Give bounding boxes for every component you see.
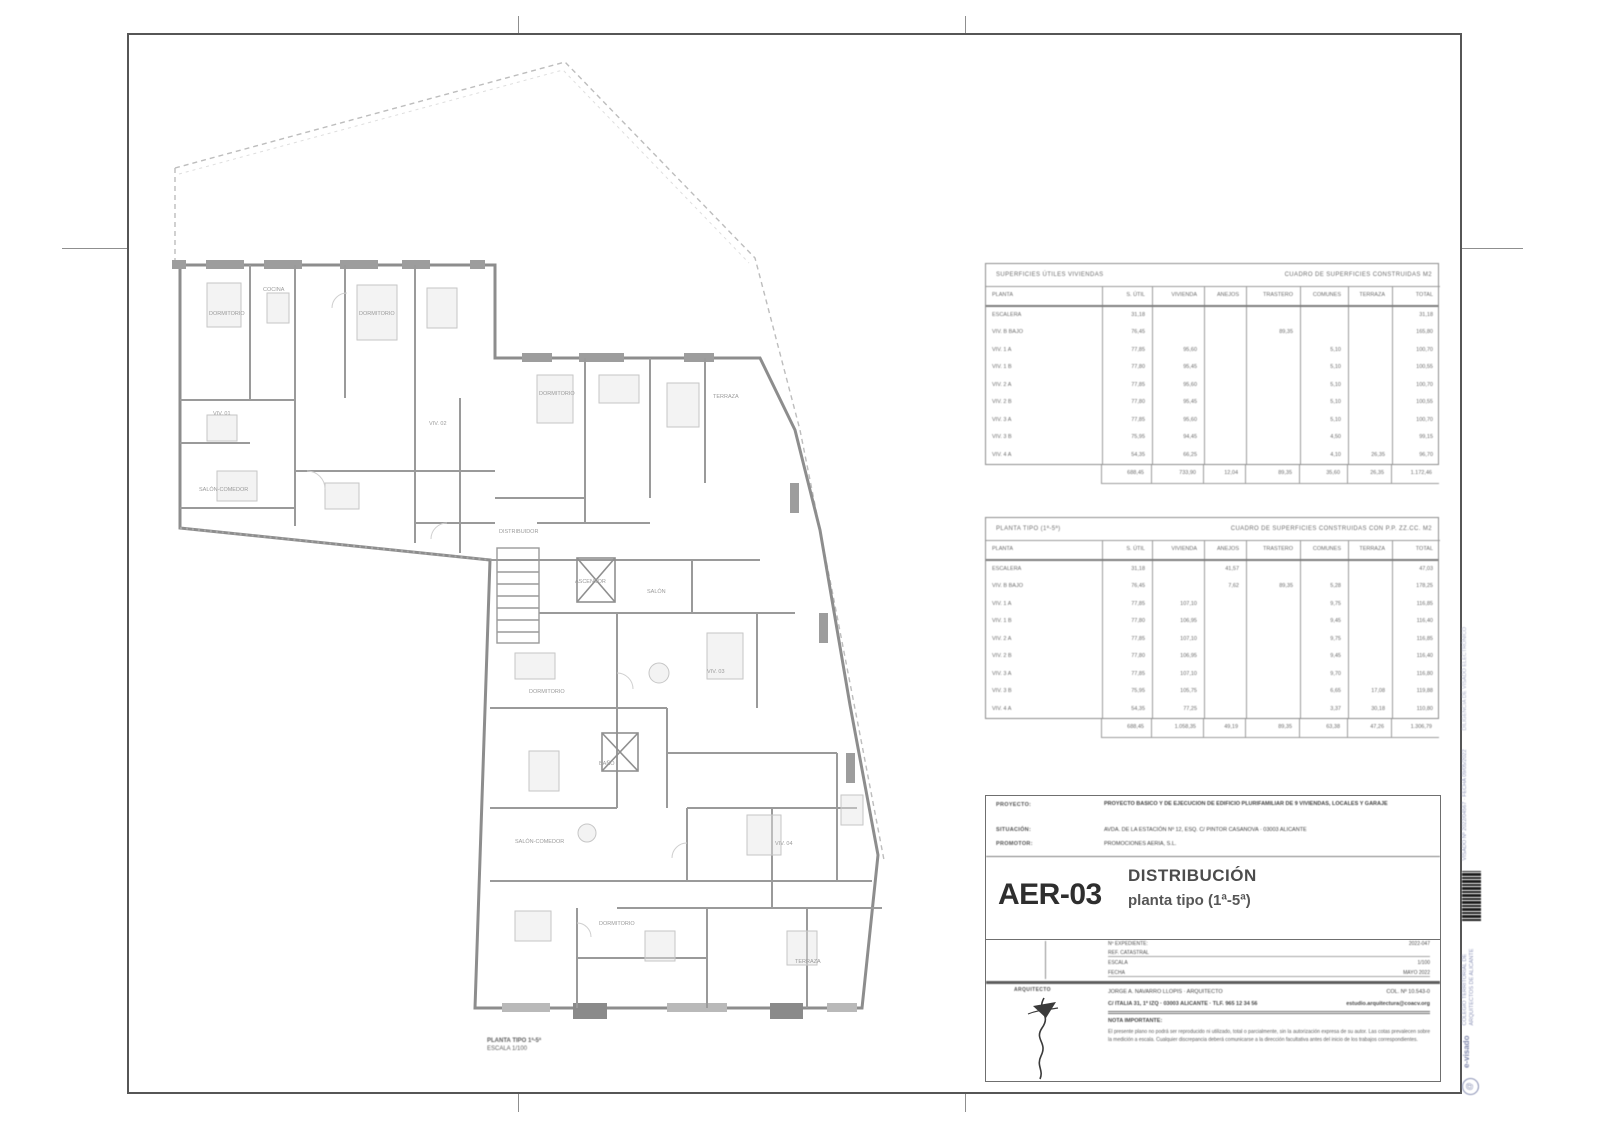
visa-stamp-strip: @ e-visado COLEGIO TERRITORIAL DE ARQUIT…: [1462, 595, 1534, 1095]
table-cell: VIV. 2 B: [986, 648, 1102, 666]
table2-header: PLANTAS. ÚTILVIVIENDAANEJOSTRASTEROCOMUN…: [986, 540, 1438, 561]
table-cell: 49,19: [1203, 719, 1245, 737]
table-cell: 26,35: [1347, 465, 1391, 483]
table-cell: [1204, 342, 1246, 360]
table-cell: VIV. 2 A: [986, 631, 1102, 649]
table2-title-left: PLANTA TIPO (1ª-5ª): [996, 526, 1061, 532]
table-cell: ANEJOS: [1204, 286, 1246, 305]
table-cell: 5,10: [1300, 412, 1348, 430]
table-cell: 77,85: [1102, 666, 1152, 684]
table-cell: VIV. 1 B: [986, 359, 1102, 377]
table-cell: [1246, 613, 1300, 631]
room-label: ASCENSOR: [575, 579, 606, 585]
table-cell: 9,45: [1300, 648, 1348, 666]
table-row: VIV. 3 B75,95105,756,6517,08119,88: [986, 683, 1438, 701]
table-cell: 116,40: [1392, 613, 1440, 631]
note-heading: NOTA IMPORTANTE:: [1108, 1018, 1162, 1024]
table-cell: 47,03: [1392, 561, 1440, 579]
table-cell: TERRAZA: [1348, 286, 1392, 305]
table-cell: VIV. 3 B: [986, 683, 1102, 701]
table-cell: 35,60: [1299, 465, 1347, 483]
table-cell: 1.306,79: [1391, 719, 1439, 737]
table-cell: TOTAL: [1392, 540, 1440, 559]
table-cell: 99,15: [1392, 429, 1440, 447]
table-cell: PLANTA: [986, 540, 1102, 559]
table-cell: VIV. 3 B: [986, 429, 1102, 447]
field2-label: REF. CATASTRAL: [1108, 950, 1149, 956]
table-cell: 9,75: [1300, 596, 1348, 614]
table-cell: [1204, 631, 1246, 649]
table-cell: [1246, 561, 1300, 579]
table-cell: [1246, 683, 1300, 701]
table-cell: [1348, 412, 1392, 430]
table-cell: 100,70: [1392, 377, 1440, 395]
table-cell: 31,18: [1392, 307, 1440, 325]
drawing-page: DORMITORIOCOCINADORMITORIOVIV. 01SALÓN-C…: [0, 0, 1600, 1129]
table-cell: 106,95: [1152, 613, 1204, 631]
table-row: VIV. 4 A54,3566,254,1026,3596,70: [986, 447, 1438, 465]
table1-header: PLANTAS. ÚTILVIVIENDAANEJOSTRASTEROCOMUN…: [986, 286, 1438, 307]
table-cell: [1348, 666, 1392, 684]
table-cell: [1204, 412, 1246, 430]
table-cell: [1204, 701, 1246, 719]
table-cell: 89,35: [1245, 719, 1299, 737]
field3-value: 1/100: [1417, 960, 1430, 966]
table-cell: 110,80: [1392, 701, 1440, 719]
site-boundary-inner: [179, 70, 749, 263]
table-cell: [1348, 578, 1392, 596]
table-cell: 9,45: [1300, 613, 1348, 631]
table-cell: [1348, 596, 1392, 614]
table-cell: 77,25: [1152, 701, 1204, 719]
table-cell: [1348, 429, 1392, 447]
field4-label: FECHA: [1108, 970, 1125, 976]
table-cell: [1246, 631, 1300, 649]
architect-email: estudio.arquitectura@coacv.org: [1346, 1001, 1430, 1007]
table-cell: 4,10: [1300, 447, 1348, 465]
table-cell: 89,35: [1246, 324, 1300, 342]
table-cell: [1246, 412, 1300, 430]
table-cell: VIVIENDA: [1152, 540, 1204, 559]
room-label: TERRAZA: [795, 959, 821, 965]
table-cell: 76,45: [1102, 324, 1152, 342]
table-cell: 5,10: [1300, 394, 1348, 412]
table-cell: 1.058,35: [1151, 719, 1203, 737]
table-cell: [1348, 324, 1392, 342]
table-cell: 54,35: [1102, 701, 1152, 719]
building-outline: [180, 265, 878, 1008]
table-cell: 30,18: [1348, 701, 1392, 719]
table-cell: 31,18: [1102, 561, 1152, 579]
table-cell: 89,35: [1245, 465, 1299, 483]
table-row: PLANTAS. ÚTILVIVIENDAANEJOSTRASTEROCOMUN…: [986, 286, 1438, 305]
room-label: TERRAZA: [713, 394, 739, 400]
table-cell: VIV. 1 A: [986, 596, 1102, 614]
table-cell: 116,85: [1392, 631, 1440, 649]
room-label: DORMITORIO: [209, 311, 245, 317]
table-cell: [1348, 307, 1392, 325]
note-text: El presente plano no podrá ser reproduci…: [1108, 1029, 1430, 1044]
table-cell: 9,70: [1300, 666, 1348, 684]
college-text: COLEGIO TERRITORIAL DE ARQUITECTOS DE AL…: [1462, 931, 1476, 1026]
project-text: PROYECTO BÁSICO Y DE EJECUCIÓN DE EDIFIC…: [1104, 801, 1432, 817]
plan-caption-line2: ESCALA 1/100: [487, 1045, 541, 1053]
divider: [1108, 1011, 1430, 1012]
visa-number-text: VISADO Nº 2022/04567 · FECHA 09/05/2022: [1462, 741, 1469, 861]
room-label: DORMITORIO: [599, 921, 635, 927]
table-row: 688,451.058,3549,1989,3563,3847,261.306,…: [1101, 719, 1439, 737]
crop-mark-left: [62, 248, 127, 249]
table-cell: 119,88: [1392, 683, 1440, 701]
table-cell: [1348, 342, 1392, 360]
table-cell: ESCALERA: [986, 307, 1102, 325]
table-row: VIV. 1 B77,80106,959,45116,40: [986, 613, 1438, 631]
table-cell: 89,35: [1246, 578, 1300, 596]
table-cell: 77,80: [1102, 359, 1152, 377]
table1-totals: 688,45733,9012,0489,3535,6026,351.172,46: [1101, 465, 1439, 484]
architect-name: JORGE A. NAVARRO LLOPIS · ARQUITECTO: [1108, 989, 1223, 995]
table-row: ESCALERA31,1841,5747,03: [986, 561, 1438, 579]
table-cell: 5,10: [1300, 377, 1348, 395]
table-cell: [1300, 561, 1348, 579]
location-label: SITUACIÓN:: [996, 827, 1031, 833]
table-cell: 95,60: [1152, 377, 1204, 395]
table-row: 688,45733,9012,0489,3535,6026,351.172,46: [1101, 465, 1439, 483]
field3-label: ESCALA: [1108, 960, 1128, 966]
table-cell: [1246, 359, 1300, 377]
room-label: DORMITORIO: [539, 391, 575, 397]
table-cell: [1204, 307, 1246, 325]
table-cell: 54,35: [1102, 447, 1152, 465]
table-cell: [1246, 447, 1300, 465]
table-cell: 100,70: [1392, 412, 1440, 430]
table-cell: 95,45: [1152, 394, 1204, 412]
table-cell: COMUNES: [1300, 540, 1348, 559]
college-logo-icon: @: [1462, 1078, 1479, 1095]
visa-barcode: [1462, 871, 1481, 921]
room-label: VIV. 02: [429, 421, 447, 427]
plan-caption-line1: PLANTA TIPO 1ª-5ª: [487, 1037, 541, 1045]
room-label: VIV. 03: [707, 669, 725, 675]
table-row: PLANTAS. ÚTILVIVIENDAANEJOSTRASTEROCOMUN…: [986, 540, 1438, 559]
table-cell: [1348, 613, 1392, 631]
table-cell: 76,45: [1102, 578, 1152, 596]
table-cell: [1204, 683, 1246, 701]
table-cell: [1246, 394, 1300, 412]
field1-value: 2022-047: [1409, 941, 1430, 947]
room-label: SALÓN: [647, 588, 666, 595]
field4-value: MAYO 2022: [1403, 970, 1430, 976]
architect-address: C/ ITALIA 31, 1º IZQ · 03003 ALICANTE · …: [1108, 1001, 1257, 1007]
table-row: VIV. B BAJO76,4589,35165,80: [986, 324, 1438, 342]
sheet-subtitle: planta tipo (1ª-5ª): [1128, 892, 1251, 909]
table-cell: 9,75: [1300, 631, 1348, 649]
table-cell: VIV. 1 B: [986, 613, 1102, 631]
sheet-title: DISTRIBUCIÓN: [1128, 866, 1257, 886]
table-cell: 4,50: [1300, 429, 1348, 447]
architect-role-label: ARQUITECTO: [1014, 987, 1051, 993]
table-cell: 100,70: [1392, 342, 1440, 360]
title-block-code-row: AER-03 DISTRIBUCIÓN planta tipo (1ª-5ª): [986, 856, 1440, 940]
table-cell: 6,65: [1300, 683, 1348, 701]
title-block: PROYECTO: PROYECTO BÁSICO Y DE EJECUCIÓN…: [985, 795, 1441, 1082]
table-cell: 165,80: [1392, 324, 1440, 342]
table-cell: [1152, 561, 1204, 579]
table-cell: 106,95: [1152, 648, 1204, 666]
table-cell: [1300, 324, 1348, 342]
table-cell: 77,85: [1102, 631, 1152, 649]
room-label: SALÓN-COMEDOR: [515, 838, 564, 845]
table-cell: VIV. B BAJO: [986, 578, 1102, 596]
table1-body: ESCALERA31,1831,18VIV. B BAJO76,4589,351…: [986, 307, 1438, 465]
evisado-wordmark: e-visado: [1462, 1036, 1471, 1068]
table2-body: ESCALERA31,1841,5747,03VIV. B BAJO76,457…: [986, 561, 1438, 719]
table-cell: TERRAZA: [1348, 540, 1392, 559]
table-cell: 116,40: [1392, 648, 1440, 666]
table-cell: [1204, 596, 1246, 614]
table-row: VIV. 3 A77,8595,605,10100,70: [986, 412, 1438, 430]
table-cell: [1348, 561, 1392, 579]
table-cell: [1348, 359, 1392, 377]
table-cell: [1246, 596, 1300, 614]
room-label: DORMITORIO: [359, 311, 395, 317]
table-cell: [1348, 631, 1392, 649]
table-cell: [1246, 666, 1300, 684]
table-cell: [1152, 578, 1204, 596]
developer-text: PROMOCIONES AERIA, S.L.: [1104, 841, 1432, 848]
table-cell: 7,62: [1204, 578, 1246, 596]
location-text: AVDA. DE LA ESTACIÓN Nº 12, ESQ. C/ PINT…: [1104, 827, 1432, 834]
table-cell: VIV. 4 A: [986, 701, 1102, 719]
architect-number: COL. Nº 10.543-0: [1386, 989, 1430, 995]
room-label: COCINA: [263, 287, 285, 293]
table-cell: 77,80: [1102, 394, 1152, 412]
table-row: VIV. B BAJO76,457,6289,355,28178,25: [986, 578, 1438, 596]
room-label: DISTRIBUIDOR: [499, 529, 538, 535]
table-cell: 3,37: [1300, 701, 1348, 719]
table-cell: [1204, 324, 1246, 342]
table-cell: 75,95: [1102, 429, 1152, 447]
sign-divider: [1045, 941, 1046, 979]
table-cell: 5,10: [1300, 342, 1348, 360]
table-cell: [1204, 666, 1246, 684]
signature-scribble: [986, 984, 1104, 1081]
table-cell: [1348, 377, 1392, 395]
divider: [1108, 1013, 1430, 1014]
table-cell: 12,04: [1203, 465, 1245, 483]
table-row: VIV. 1 A77,8595,605,10100,70: [986, 342, 1438, 360]
table-cell: [1246, 429, 1300, 447]
table-cell: [1204, 447, 1246, 465]
table-cell: TRASTERO: [1246, 286, 1300, 305]
table-cell: 95,60: [1152, 412, 1204, 430]
table-cell: 1.172,46: [1391, 465, 1439, 483]
table-cell: 688,45: [1101, 465, 1151, 483]
room-label: VIV. 01: [213, 411, 231, 417]
table-cell: [1204, 394, 1246, 412]
table2-title-right: CUADRO DE SUPERFICIES CONSTRUIDAS CON P.…: [1231, 526, 1432, 532]
table-cell: [1204, 613, 1246, 631]
table-cell: [1246, 342, 1300, 360]
table-row: VIV. 4 A54,3577,253,3730,18110,80: [986, 701, 1438, 719]
project-label: PROYECTO:: [996, 802, 1031, 808]
table-cell: 77,80: [1102, 648, 1152, 666]
table-cell: 5,28: [1300, 578, 1348, 596]
table-cell: 77,85: [1102, 377, 1152, 395]
room-label: SALÓN-COMEDOR: [199, 486, 248, 493]
table1-title-left: SUPERFICIES ÚTILES VIVIENDAS: [996, 272, 1104, 278]
table-cell: VIV. 4 A: [986, 447, 1102, 465]
table-cell: 77,85: [1102, 342, 1152, 360]
table-cell: VIV. 2 A: [986, 377, 1102, 395]
table-cell: 116,85: [1392, 596, 1440, 614]
table-row: VIV. 2 B77,8095,455,10100,55: [986, 394, 1438, 412]
table-cell: COMUNES: [1300, 286, 1348, 305]
table-cell: 96,70: [1392, 447, 1440, 465]
floor-plan: DORMITORIOCOCINADORMITORIOVIV. 01SALÓN-C…: [147, 53, 947, 1073]
table-row: VIV. 1 A77,85107,109,75116,85: [986, 596, 1438, 614]
table-row: VIV. 2 A77,8595,605,10100,70: [986, 377, 1438, 395]
table-cell: 5,10: [1300, 359, 1348, 377]
plan-caption: PLANTA TIPO 1ª-5ª ESCALA 1/100: [487, 1037, 541, 1053]
table-cell: 100,55: [1392, 359, 1440, 377]
table-cell: [1152, 307, 1204, 325]
areas-table-construidas: SUPERFICIES ÚTILES VIVIENDAS CUADRO DE S…: [985, 263, 1439, 484]
visa-top-text: DILIGENCIA DE VISADO ELECTRÓNICO: [1462, 621, 1469, 731]
areas-table-zzcc: PLANTA TIPO (1ª-5ª) CUADRO DE SUPERFICIE…: [985, 517, 1439, 738]
table-cell: VIV. 2 B: [986, 394, 1102, 412]
table-cell: ESCALERA: [986, 561, 1102, 579]
table-cell: 178,25: [1392, 578, 1440, 596]
table2-totals: 688,451.058,3549,1989,3563,3847,261.306,…: [1101, 719, 1439, 738]
title-block-project-row: PROYECTO: PROYECTO BÁSICO Y DE EJECUCIÓN…: [986, 796, 1440, 857]
table-cell: 107,10: [1152, 666, 1204, 684]
table-cell: VIV. 3 A: [986, 666, 1102, 684]
table-cell: S. ÚTIL: [1102, 286, 1152, 305]
table-cell: TOTAL: [1392, 286, 1440, 305]
table-cell: S. ÚTIL: [1102, 540, 1152, 559]
table-cell: [1204, 648, 1246, 666]
table-cell: 77,85: [1102, 412, 1152, 430]
table-row: VIV. 3 B75,9594,454,5099,15: [986, 429, 1438, 447]
table-cell: 63,38: [1299, 719, 1347, 737]
table-cell: [1152, 324, 1204, 342]
table-cell: 107,10: [1152, 596, 1204, 614]
developer-label: PROMOTOR:: [996, 841, 1033, 847]
table-cell: [1246, 648, 1300, 666]
title-block-architect-row: ARQUITECTO JORGE A. NAVARRO LLOPIS · ARQ…: [986, 984, 1440, 1081]
sheet-frame: DORMITORIOCOCINADORMITORIOVIV. 01SALÓN-C…: [127, 33, 1462, 1094]
table-cell: 107,10: [1152, 631, 1204, 649]
table-cell: [1204, 377, 1246, 395]
table-cell: [1348, 394, 1392, 412]
table-cell: 733,90: [1151, 465, 1203, 483]
table-cell: 66,25: [1152, 447, 1204, 465]
table-cell: VIVIENDA: [1152, 286, 1204, 305]
table-cell: 94,45: [1152, 429, 1204, 447]
table-cell: [1246, 307, 1300, 325]
table-cell: [1204, 429, 1246, 447]
room-label: VIV. 04: [775, 841, 793, 847]
table-cell: ANEJOS: [1204, 540, 1246, 559]
table-cell: [1348, 648, 1392, 666]
table-cell: 116,80: [1392, 666, 1440, 684]
room-label: BAÑO: [599, 760, 615, 767]
table-cell: 688,45: [1101, 719, 1151, 737]
table-row: VIV. 2 B77,80106,959,45116,40: [986, 648, 1438, 666]
field1-label: Nº EXPEDIENTE:: [1108, 941, 1148, 947]
table-cell: VIV. 1 A: [986, 342, 1102, 360]
table-cell: VIV. B BAJO: [986, 324, 1102, 342]
sheet-code: AER-03: [998, 878, 1102, 912]
table-row: ESCALERA31,1831,18: [986, 307, 1438, 325]
table-cell: 47,26: [1347, 719, 1391, 737]
table-cell: 100,55: [1392, 394, 1440, 412]
table-row: VIV. 1 B77,8095,455,10100,55: [986, 359, 1438, 377]
table-cell: 17,08: [1348, 683, 1392, 701]
table-cell: 95,45: [1152, 359, 1204, 377]
table-cell: [1300, 307, 1348, 325]
table-cell: 77,80: [1102, 613, 1152, 631]
table-cell: 41,57: [1204, 561, 1246, 579]
table-cell: PLANTA: [986, 286, 1102, 305]
table-cell: 105,75: [1152, 683, 1204, 701]
table-row: VIV. 2 A77,85107,109,75116,85: [986, 631, 1438, 649]
table-cell: TRASTERO: [1246, 540, 1300, 559]
crop-mark-right: [1458, 248, 1523, 249]
table-cell: 26,35: [1348, 447, 1392, 465]
signature-cell: ARQUITECTO: [986, 984, 1104, 1081]
table-cell: 95,60: [1152, 342, 1204, 360]
table-cell: 75,95: [1102, 683, 1152, 701]
table-cell: [1246, 377, 1300, 395]
table-cell: 77,85: [1102, 596, 1152, 614]
table-cell: VIV. 3 A: [986, 412, 1102, 430]
table-cell: [1246, 701, 1300, 719]
title-block-fields-row: Nº EXPEDIENTE: 2022-047 REF. CATASTRAL E…: [986, 939, 1440, 984]
table-row: VIV. 3 A77,85107,109,70116,80: [986, 666, 1438, 684]
table-cell: 31,18: [1102, 307, 1152, 325]
table1-title-right: CUADRO DE SUPERFICIES CONSTRUIDAS M2: [1285, 272, 1432, 278]
table-cell: [1204, 359, 1246, 377]
room-label: DORMITORIO: [529, 689, 565, 695]
